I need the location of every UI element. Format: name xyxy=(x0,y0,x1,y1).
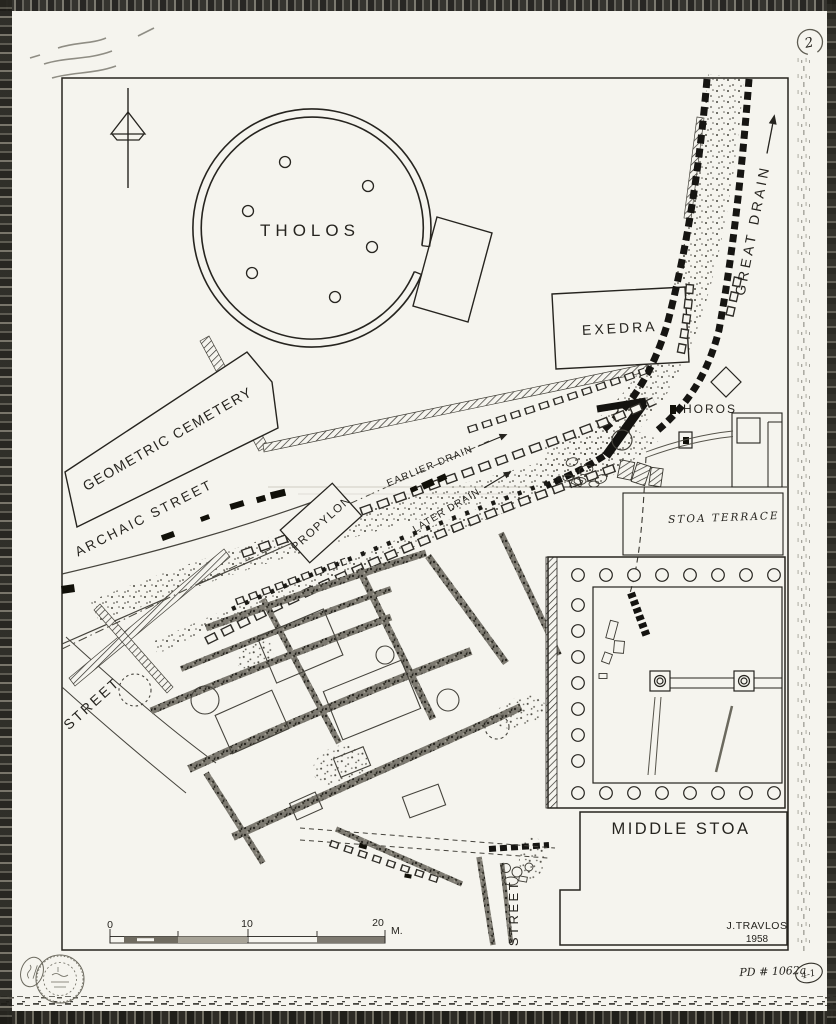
great-drain-label-group: GREAT DRAIN xyxy=(732,113,783,297)
tholos-porch xyxy=(413,217,492,322)
scan-edge-right xyxy=(827,0,836,1024)
library-stamp xyxy=(36,955,84,1003)
tholos-label: THOLOS xyxy=(260,221,360,240)
horos-label: HOROS xyxy=(683,402,737,416)
street-south-label: STREET xyxy=(506,880,521,946)
stamp-oval xyxy=(17,954,47,989)
scale-tick-10: 10 xyxy=(241,918,253,930)
street-west-label: STREET xyxy=(60,674,123,733)
stoa-terrace-pencil-note: STOA TERRACE xyxy=(668,510,780,526)
excavated-house-walls xyxy=(151,533,559,945)
scan-edge-left xyxy=(0,0,12,1024)
author-credit: J.TRAVLOS xyxy=(727,920,788,932)
terrace-stones xyxy=(599,620,625,678)
scanned-plan-sheet: THOLOS EXEDRA GREAT DRAIN HOROS GEOMETRI… xyxy=(0,0,836,1024)
pencil-scribbles xyxy=(30,28,154,78)
great-drain-arrow-icon xyxy=(763,113,778,154)
scan-edge-top xyxy=(0,0,836,11)
scan-edge-bottom xyxy=(0,1011,836,1024)
credit-year: 1958 xyxy=(746,934,769,945)
scale-tick-0: 0 xyxy=(107,919,113,931)
middle-stoa-label: MIDDLE STOA xyxy=(611,820,750,838)
scale-bar: 0 10 20 M. xyxy=(107,917,403,944)
agora-tholos-plan: THOLOS EXEDRA GREAT DRAIN HOROS GEOMETRI… xyxy=(0,0,836,1024)
earlier-drain-arrow-icon xyxy=(477,431,509,450)
horos-stone xyxy=(670,405,676,414)
sheet-number-circle: 2 xyxy=(796,28,825,57)
middle-stoa-terrace xyxy=(546,557,785,808)
scan-noise-right xyxy=(797,58,810,953)
north-arrow-icon xyxy=(111,88,145,188)
scale-tick-20: 20 xyxy=(372,917,384,929)
scan-noise-bottom xyxy=(0,996,836,1006)
scale-unit: M. xyxy=(391,925,403,937)
sheet-number: 2 xyxy=(802,34,815,52)
